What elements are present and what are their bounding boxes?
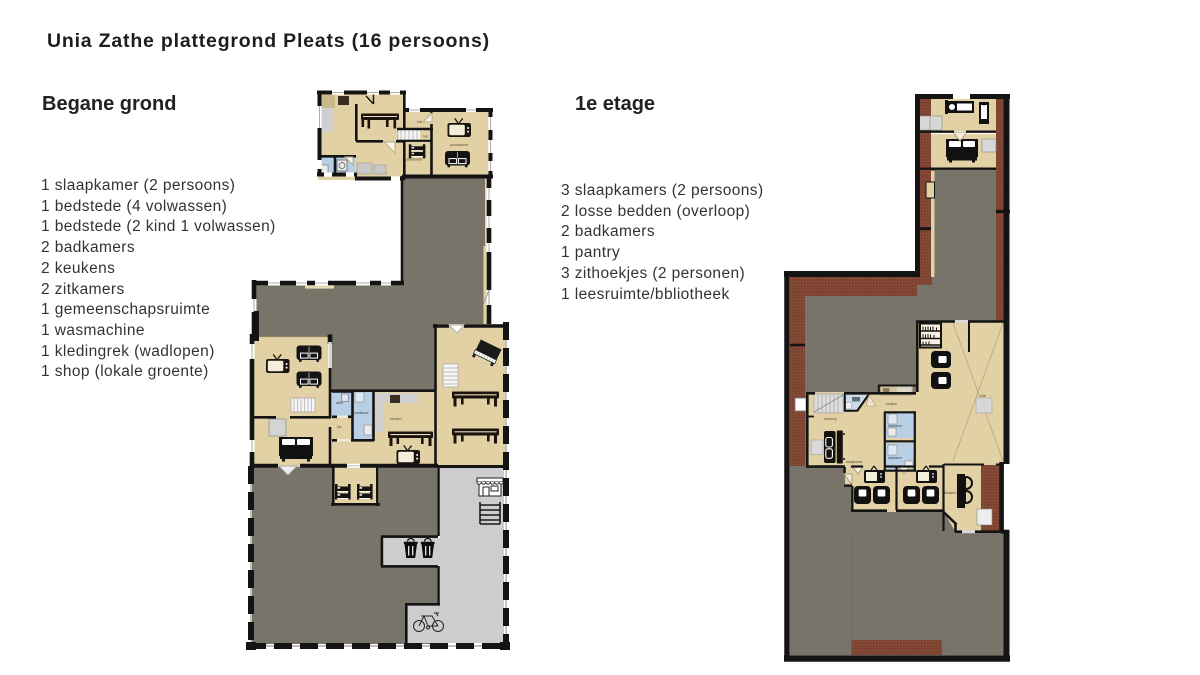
svg-text:badkamer: badkamer xyxy=(888,456,903,460)
svg-text:hal: hal xyxy=(417,120,422,124)
svg-text:hal: hal xyxy=(423,135,428,139)
svg-text:slaapkamer: slaapkamer xyxy=(406,158,423,162)
svg-text:slaapkamer: slaapkamer xyxy=(846,460,863,464)
svg-text:woonkamer: woonkamer xyxy=(450,143,469,147)
svg-text:keuken: keuken xyxy=(886,402,897,406)
svg-text:overloop: overloop xyxy=(824,417,837,421)
svg-text:badkamer: badkamer xyxy=(355,411,370,415)
svg-text:zitkamer: zitkamer xyxy=(944,491,957,495)
svg-text:hal: hal xyxy=(337,425,342,429)
svg-text:keuken: keuken xyxy=(390,417,402,421)
svg-text:badkamer: badkamer xyxy=(888,424,903,428)
svg-text:vide: vide xyxy=(980,394,986,398)
